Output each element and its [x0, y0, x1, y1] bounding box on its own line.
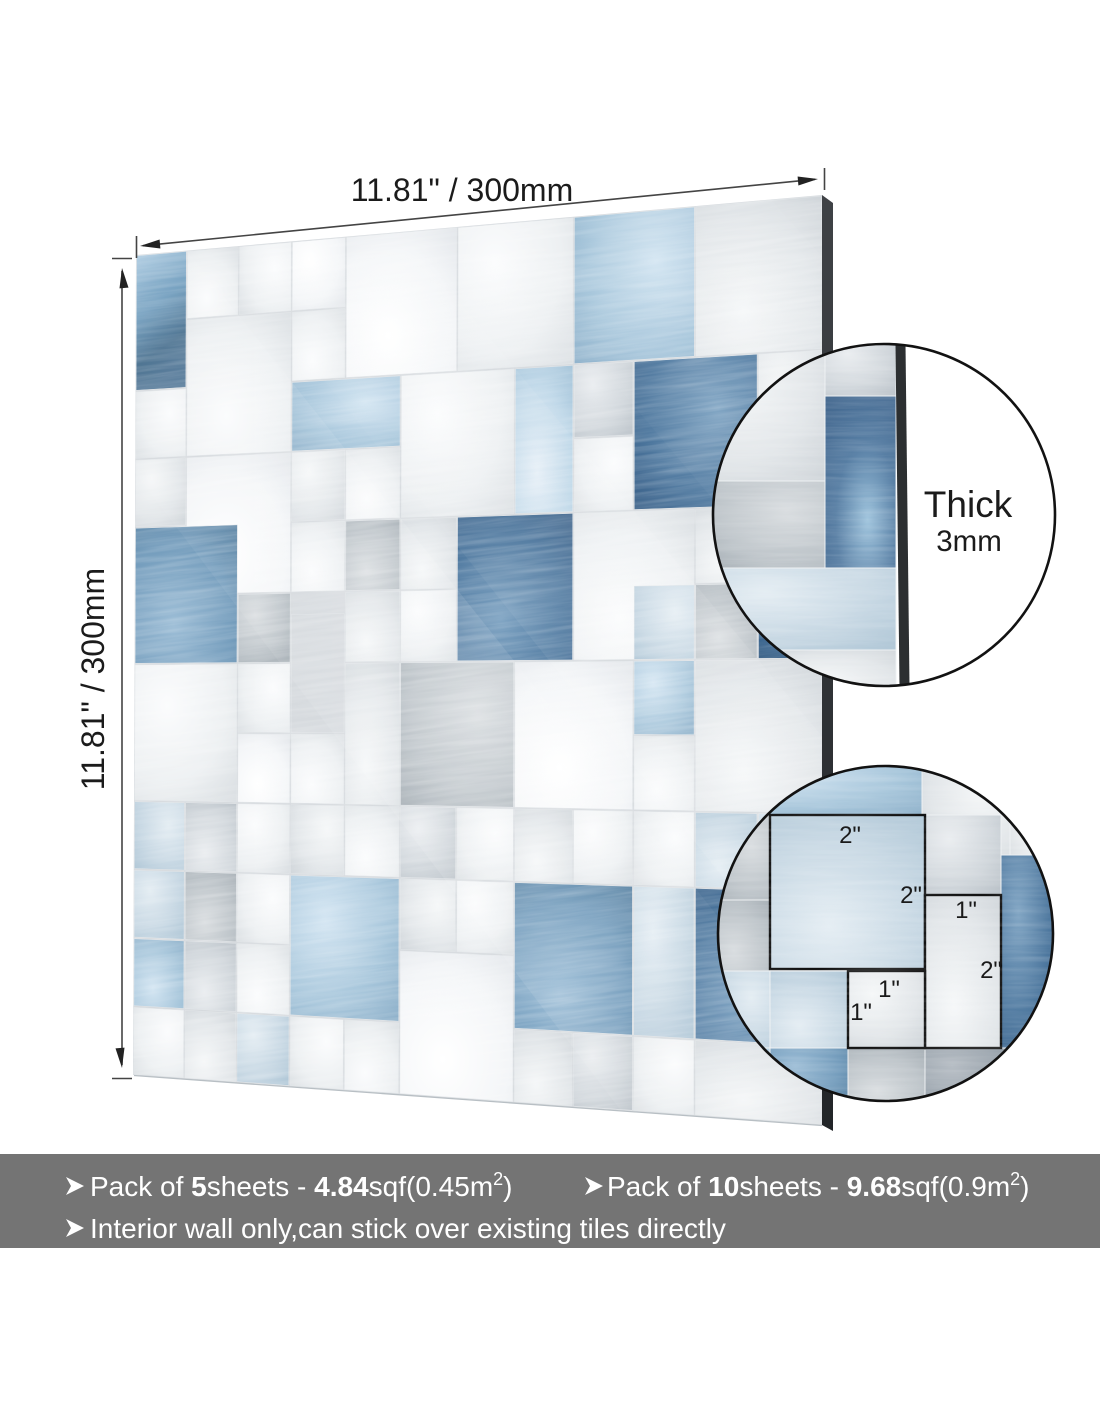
svg-text:1": 1" [955, 897, 977, 924]
svg-text:3mm: 3mm [936, 525, 1002, 558]
svg-text:Interior wall only,can stick o: Interior wall only,can stick over existi… [90, 1213, 726, 1244]
svg-text:2": 2" [839, 822, 861, 849]
svg-text:Thick: Thick [924, 484, 1013, 525]
svg-text:2": 2" [980, 957, 1002, 984]
svg-text:Pack of 10sheets - 9.68sqf(0.9: Pack of 10sheets - 9.68sqf(0.9m2) [607, 1169, 1030, 1202]
svg-text:2": 2" [900, 882, 922, 909]
svg-text:Pack of 5sheets - 4.84sqf(0.45: Pack of 5sheets - 4.84sqf(0.45m2) [90, 1169, 512, 1202]
svg-text:11.81" / 300mm: 11.81" / 300mm [75, 568, 111, 790]
svg-text:1": 1" [850, 999, 872, 1026]
svg-text:11.81" / 300mm: 11.81" / 300mm [351, 172, 573, 208]
svg-text:1": 1" [878, 976, 900, 1003]
